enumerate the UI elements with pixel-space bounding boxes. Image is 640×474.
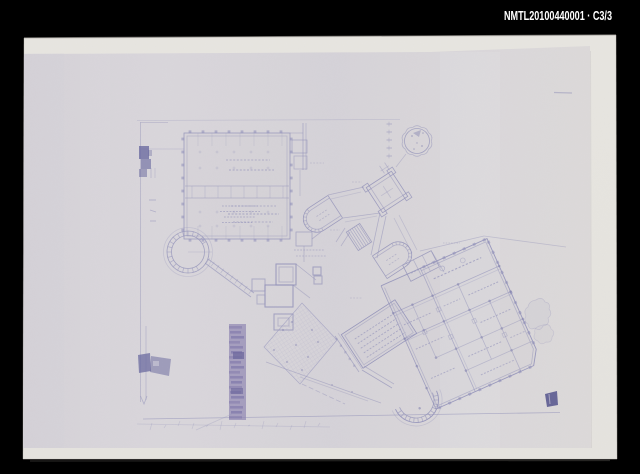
svg-text:NMTL20100440001 · C3/3: NMTL20100440001 · C3/3 [504, 8, 612, 23]
